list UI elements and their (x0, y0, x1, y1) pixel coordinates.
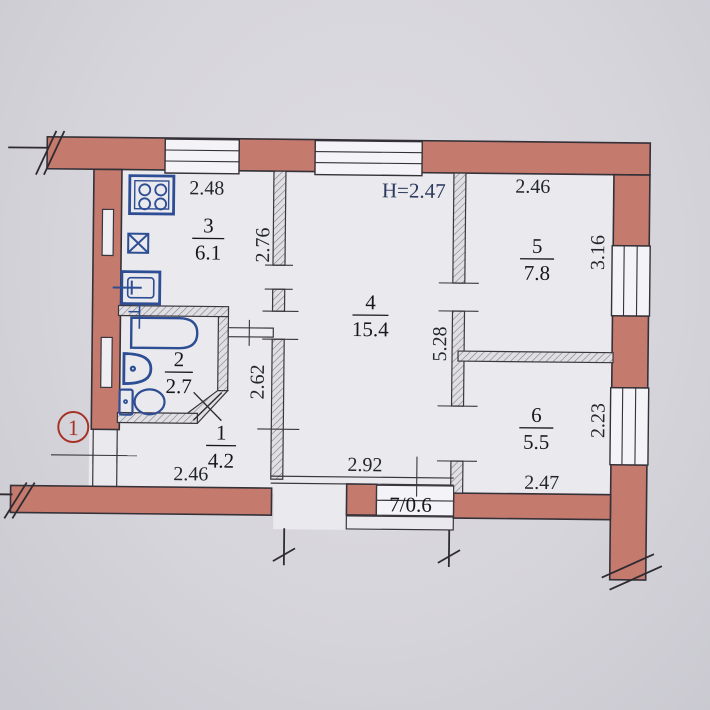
dim-living-depth: 5.28 (429, 326, 451, 361)
svg-text:2: 2 (174, 347, 185, 371)
dim-room5-width: 2.46 (515, 176, 550, 198)
outer-wall-bottom-right (453, 493, 610, 520)
wall-living-room5 (453, 173, 466, 283)
window-room5 (611, 246, 650, 316)
wall-hall-living-lower (271, 339, 284, 479)
svg-text:6.1: 6.1 (195, 240, 221, 264)
window-room6 (610, 388, 649, 465)
section-marker-1: 1 (58, 412, 88, 442)
room-7-label: 7/0.6 (389, 492, 432, 516)
ceiling-height-label: H=2.47 (382, 178, 446, 203)
floor-plan: 2.48 2.46 2.76 3.16 5.28 2.62 2.23 2.92 … (0, 0, 710, 710)
wall-corridor-living-mid (273, 289, 285, 311)
dim-room5-depth: 3.16 (587, 235, 609, 270)
wall-room5-room6 (458, 351, 613, 363)
svg-text:1: 1 (68, 415, 79, 440)
svg-text:6: 6 (531, 403, 542, 427)
dim-kitchen-width: 2.48 (189, 177, 224, 199)
svg-text:4: 4 (365, 290, 376, 314)
svg-text:4.2: 4.2 (208, 448, 234, 472)
bathroom-wall-right (218, 317, 229, 391)
dim-room6-depth: 2.23 (587, 403, 609, 438)
outer-wall-right-lower (610, 465, 647, 580)
dim-kitchen-depth: 2.76 (252, 227, 274, 262)
window-living-room (315, 141, 422, 176)
svg-text:H=2.47: H=2.47 (382, 178, 446, 203)
floor-plan-photo: 2.48 2.46 2.76 3.16 5.28 2.62 2.23 2.92 … (0, 0, 710, 710)
balcony-pier-wall (346, 484, 376, 515)
section-cut-below-balcony-right (438, 530, 460, 567)
outer-wall-right-upper (613, 175, 650, 246)
wall-kitchen-living-upper (273, 171, 286, 265)
outer-wall-right-middle (612, 316, 649, 388)
svg-text:2.7: 2.7 (165, 374, 191, 398)
dim-hall-depth: 2.62 (247, 364, 269, 399)
outer-wall-left (91, 169, 122, 429)
svg-text:7.8: 7.8 (524, 261, 550, 285)
section-cut-below-balcony-left (273, 528, 295, 565)
dim-hall-width: 2.46 (173, 463, 208, 485)
outer-wall-bottom-left (10, 485, 271, 515)
svg-text:1: 1 (216, 421, 227, 445)
kitchen-door-stub-wall (228, 328, 273, 337)
svg-text:5.5: 5.5 (523, 430, 549, 454)
dim-room6-width: 2.47 (524, 472, 559, 494)
dim-living-width: 2.92 (347, 454, 382, 476)
window-kitchen (165, 139, 239, 174)
svg-text:3: 3 (203, 213, 214, 237)
svg-text:7/0.6: 7/0.6 (389, 492, 432, 516)
left-wall-niche-lower (101, 337, 113, 387)
svg-text:5: 5 (532, 234, 543, 258)
left-wall-niche-upper (102, 209, 113, 255)
svg-text:15.4: 15.4 (352, 317, 389, 341)
